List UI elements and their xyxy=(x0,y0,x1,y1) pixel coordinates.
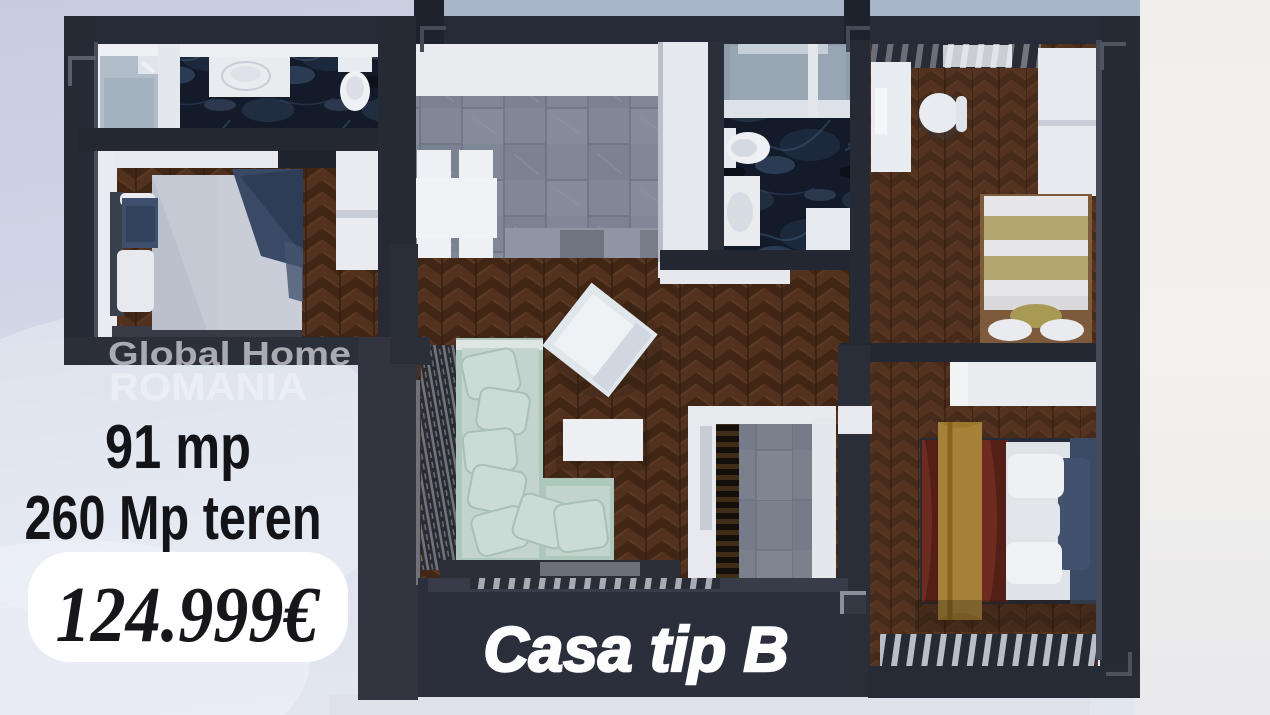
svg-text:Casa tip B: Casa tip B xyxy=(484,615,789,685)
svg-text:91 mp: 91 mp xyxy=(105,413,251,482)
svg-text:124.999€: 124.999€ xyxy=(56,572,321,659)
svg-text:ROMANIA: ROMANIA xyxy=(109,366,307,409)
svg-text:260 Mp teren: 260 Mp teren xyxy=(25,484,322,553)
